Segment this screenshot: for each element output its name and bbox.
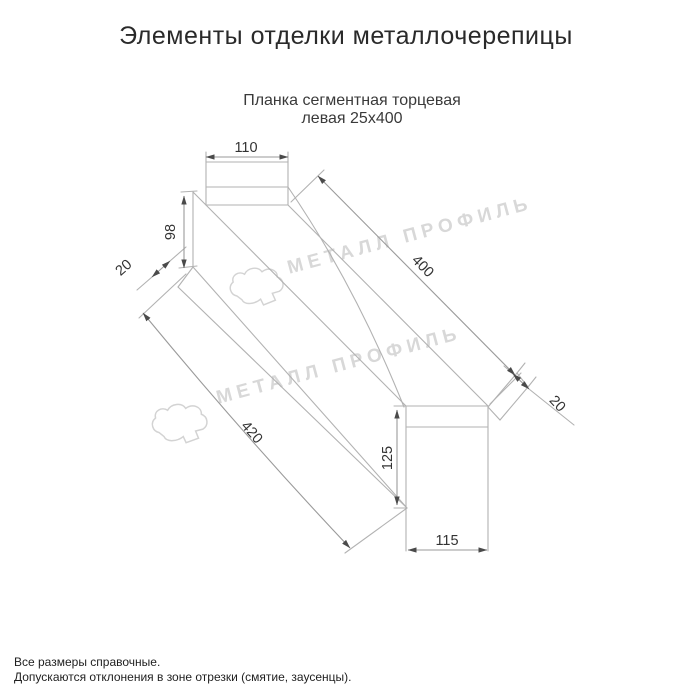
dim-label-125: 125	[380, 446, 396, 470]
near-end-flange-rect	[206, 162, 288, 205]
far-hem-flap	[488, 373, 528, 420]
dim-label-20-near: 20	[113, 257, 136, 280]
near-hem-flap-edge	[178, 267, 193, 287]
profile-outline	[137, 152, 574, 553]
ext-420-near	[139, 274, 186, 318]
drawing-page: Элементы отделки металлочерепицы Планка …	[0, 0, 700, 700]
dimension-labels: 110 98 20 400 420 20 125 115	[113, 140, 569, 549]
long-edge-top-left	[193, 192, 406, 406]
dim-label-400: 400	[408, 252, 436, 280]
footer-note-line2: Допускаются отклонения в зоне отрезки (с…	[14, 670, 351, 685]
dim-label-110: 110	[234, 140, 257, 156]
hem-line	[178, 287, 407, 508]
dim-line-20-near	[152, 261, 170, 277]
long-fold-line	[288, 187, 404, 407]
dim-label-98: 98	[163, 224, 179, 240]
dim-label-115: 115	[435, 533, 458, 549]
far-hem-ext1	[517, 363, 525, 373]
long-edge-top-right	[288, 205, 488, 406]
technical-drawing: 110 98 20 400 420 20 125 115	[0, 0, 700, 700]
far-hem-ext2	[528, 377, 536, 387]
dim-line-400	[318, 176, 515, 375]
dim-line-20-far	[513, 374, 529, 389]
ext-98-top-tick	[181, 191, 197, 192]
ext-420-far	[345, 508, 407, 553]
dim-label-420: 420	[237, 418, 265, 447]
footer-note-line1: Все размеры справочные.	[14, 655, 351, 670]
dim-label-20-far: 20	[546, 393, 569, 416]
long-edge-bottom	[193, 267, 407, 508]
dimension-lines	[143, 157, 529, 550]
ext-20-near-a	[137, 277, 152, 290]
ext-20-far-a	[504, 366, 513, 374]
footer-notes: Все размеры справочные. Допускаются откл…	[14, 655, 351, 685]
ext-400-near	[291, 170, 324, 202]
